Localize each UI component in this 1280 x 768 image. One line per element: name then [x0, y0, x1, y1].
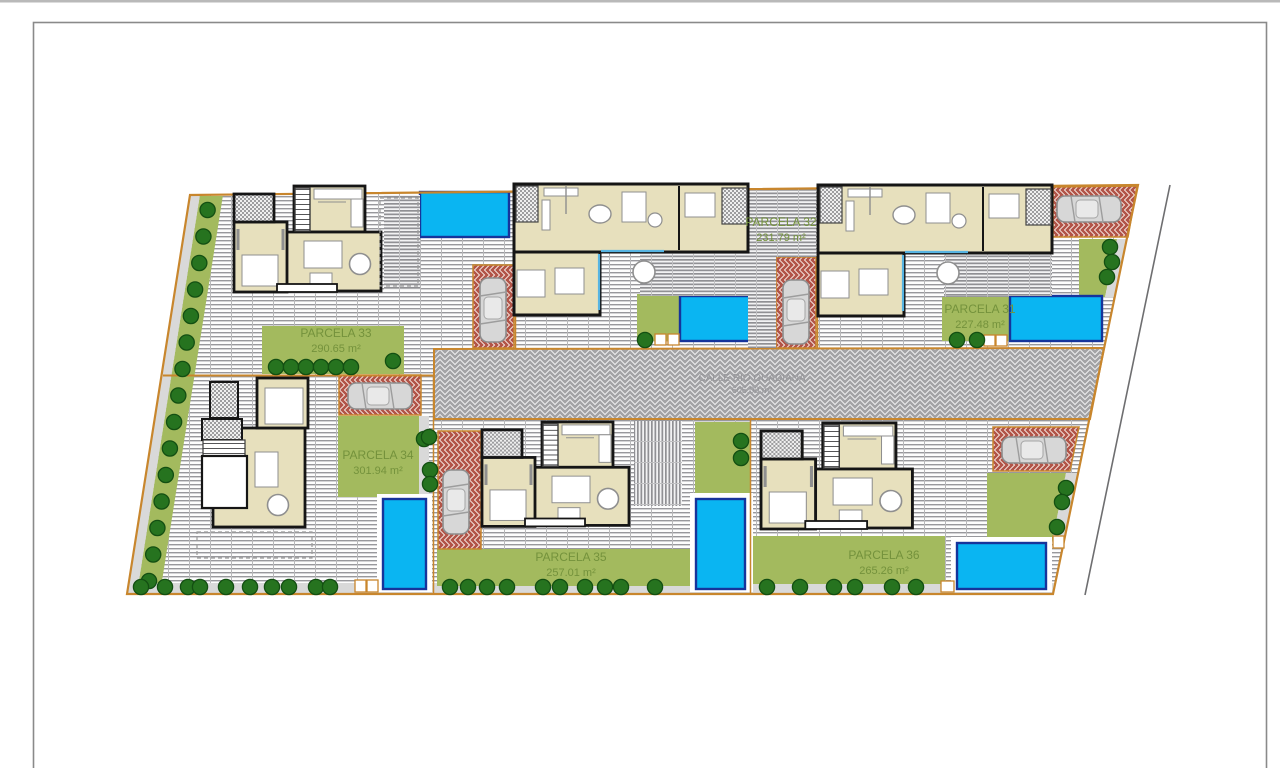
svg-text:CALLE RIO GUADIANA: CALLE RIO GUADIANA — [698, 373, 806, 384]
svg-text:PARCELA 36: PARCELA 36 — [848, 548, 919, 562]
svg-text:227.48 m²: 227.48 m² — [955, 319, 1005, 331]
svg-text:605.00 m²: 605.00 m² — [732, 385, 773, 395]
svg-text:231.79 m²: 231.79 m² — [756, 232, 806, 244]
svg-text:290.65 m²: 290.65 m² — [311, 343, 361, 355]
svg-text:PARCELA 34: PARCELA 34 — [342, 448, 413, 462]
svg-text:PARCELA 33: PARCELA 33 — [300, 326, 371, 340]
svg-text:257.01 m²: 257.01 m² — [546, 567, 596, 579]
svg-text:265.26 m²: 265.26 m² — [859, 565, 909, 577]
svg-text:PARCELA 31: PARCELA 31 — [944, 302, 1015, 316]
svg-text:PARCELA 32: PARCELA 32 — [745, 215, 816, 229]
svg-text:301.94 m²: 301.94 m² — [353, 465, 403, 477]
svg-text:PARCELA 35: PARCELA 35 — [535, 550, 606, 564]
